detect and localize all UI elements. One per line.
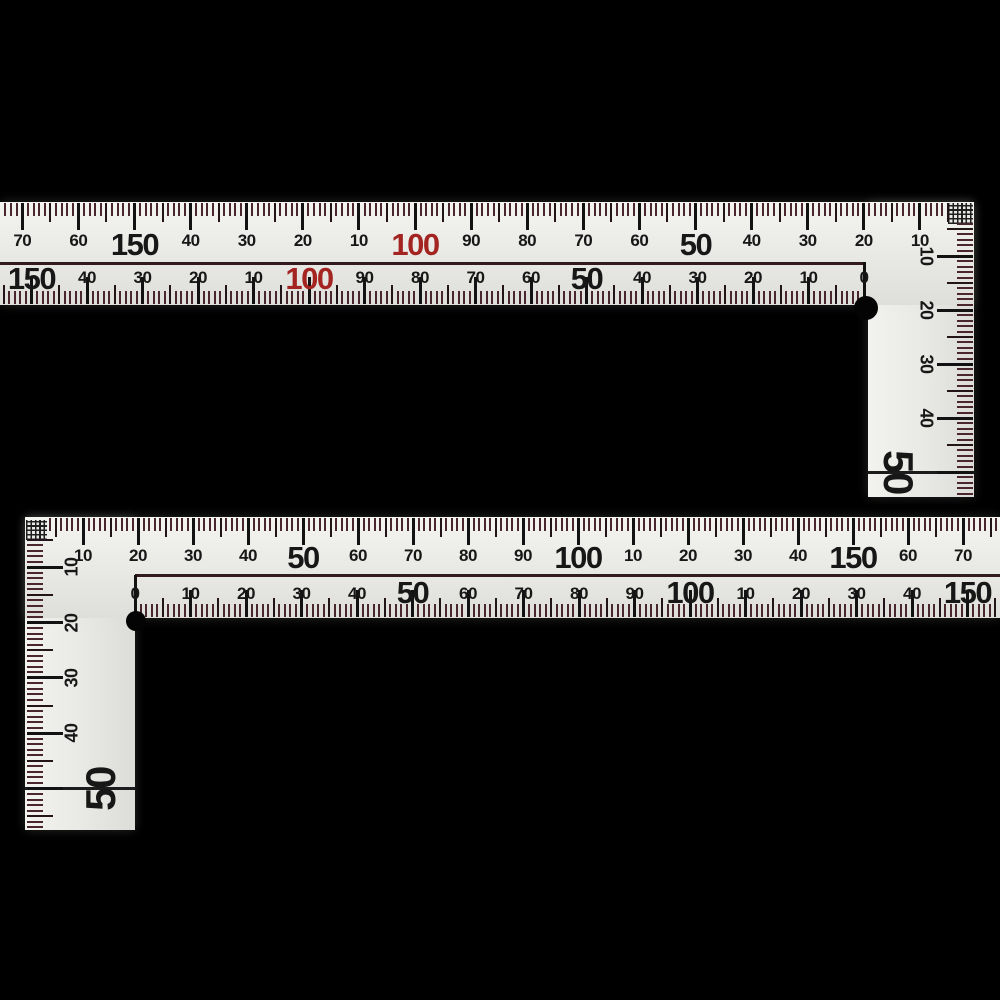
tick <box>894 604 896 617</box>
tick <box>556 604 558 617</box>
tick <box>154 518 156 531</box>
tick <box>258 518 260 531</box>
scene: 1020304050607080901001020304015060700102… <box>0 0 1000 1000</box>
tick <box>27 799 43 801</box>
tick <box>797 518 800 545</box>
tick <box>506 604 508 617</box>
tick <box>883 598 885 617</box>
tick <box>167 604 169 617</box>
tick <box>841 518 843 531</box>
tick <box>27 760 53 762</box>
tick <box>27 644 43 646</box>
tick <box>27 749 43 751</box>
scale-label: 150 <box>944 575 991 611</box>
tick <box>66 518 68 531</box>
tick <box>572 604 574 617</box>
tick <box>308 518 310 531</box>
tick <box>704 518 706 531</box>
tick <box>27 605 43 607</box>
tick <box>567 604 569 617</box>
tick <box>550 598 552 617</box>
tick <box>145 604 147 617</box>
tick <box>345 604 347 617</box>
tick <box>495 598 497 617</box>
tick <box>27 555 43 557</box>
tick <box>517 604 519 617</box>
tick <box>858 518 860 531</box>
tick <box>27 633 43 635</box>
tick <box>544 518 546 531</box>
tick <box>434 604 436 617</box>
tick <box>203 518 205 531</box>
tick <box>990 518 992 537</box>
tick <box>889 604 891 617</box>
tick <box>82 518 85 545</box>
tick <box>572 518 574 531</box>
scale-label: 10 <box>737 584 755 604</box>
tick <box>223 604 225 617</box>
scale-label: 80 <box>570 584 588 604</box>
tick <box>396 518 398 531</box>
tick <box>534 604 536 617</box>
tick <box>401 518 403 531</box>
tick <box>456 518 458 531</box>
tick <box>792 518 794 531</box>
tick <box>407 518 409 531</box>
tick <box>27 671 43 673</box>
tick <box>828 598 830 617</box>
tick <box>178 604 180 617</box>
tick <box>439 598 441 617</box>
scale-label: 20 <box>129 546 147 566</box>
tick <box>297 518 299 531</box>
tick <box>162 598 164 617</box>
tick <box>236 518 238 531</box>
tick <box>900 604 902 617</box>
tick <box>328 598 330 617</box>
tick <box>291 518 293 531</box>
tick <box>561 518 563 531</box>
tick <box>566 518 568 531</box>
tick <box>528 518 530 531</box>
tick <box>599 518 601 531</box>
tick <box>27 666 43 668</box>
tick <box>918 518 920 531</box>
tick <box>27 705 53 707</box>
tick <box>764 518 766 531</box>
tick <box>27 738 43 740</box>
tick <box>847 518 849 531</box>
tick <box>379 518 381 531</box>
tick <box>761 604 763 617</box>
tick <box>346 518 348 531</box>
tick <box>121 518 123 531</box>
scale-label: 10 <box>182 584 200 604</box>
tick <box>786 518 788 531</box>
tick <box>632 518 635 545</box>
tick <box>181 518 183 531</box>
tick <box>341 518 343 531</box>
tick <box>522 518 525 545</box>
tick <box>748 518 750 531</box>
tick <box>720 518 722 531</box>
tick <box>27 721 43 723</box>
tick <box>611 604 613 617</box>
tick <box>656 604 658 617</box>
tick <box>473 604 475 617</box>
scale-label: 90 <box>514 546 532 566</box>
tick <box>844 604 846 617</box>
tick <box>698 518 700 531</box>
tick <box>588 518 590 531</box>
tick <box>533 518 535 531</box>
tick <box>27 727 43 729</box>
tick <box>264 518 266 531</box>
tick <box>201 604 203 617</box>
tick <box>528 604 530 617</box>
tick <box>198 518 200 531</box>
tick <box>913 518 915 531</box>
tick <box>173 604 175 617</box>
tick <box>187 518 189 531</box>
tick <box>660 518 662 537</box>
tick <box>440 518 442 537</box>
tick <box>77 518 79 531</box>
tick <box>27 810 43 812</box>
tick <box>973 518 975 531</box>
tick <box>605 518 607 537</box>
tick <box>390 518 392 531</box>
tick <box>71 518 73 531</box>
tick <box>863 518 865 531</box>
tick <box>750 604 752 617</box>
tick <box>27 550 43 552</box>
tick <box>555 518 557 531</box>
tick <box>27 611 43 613</box>
tick <box>872 604 874 617</box>
tick <box>665 518 667 531</box>
tick <box>317 604 319 617</box>
tick <box>247 518 250 545</box>
tick <box>412 518 415 545</box>
scale-label: 30 <box>734 546 752 566</box>
tick <box>878 604 880 617</box>
tick <box>27 787 63 790</box>
tick <box>55 518 57 537</box>
tick <box>783 604 785 617</box>
tick <box>621 518 623 531</box>
tick <box>979 518 981 531</box>
tick <box>484 518 486 531</box>
tick <box>418 518 420 531</box>
scale-label: 20 <box>792 584 810 604</box>
tick <box>654 518 656 531</box>
tick <box>511 604 513 617</box>
tick <box>595 604 597 617</box>
tick <box>984 518 986 531</box>
tick <box>110 518 112 537</box>
tick <box>242 518 244 531</box>
scale-end-crosshatch <box>26 520 47 540</box>
tick <box>814 518 816 531</box>
tick <box>212 604 214 617</box>
tick <box>905 604 907 617</box>
tick <box>617 604 619 617</box>
scale-label: 20 <box>679 546 697 566</box>
tick <box>126 518 128 531</box>
tick <box>27 676 63 679</box>
tick <box>896 518 898 531</box>
tick <box>861 604 863 617</box>
tick <box>251 604 253 617</box>
tick <box>27 688 43 690</box>
tick <box>429 518 431 531</box>
tick <box>27 682 43 684</box>
tick <box>156 604 158 617</box>
tick <box>517 518 519 531</box>
tick <box>165 518 167 537</box>
tick <box>253 518 255 531</box>
tick <box>27 743 43 745</box>
tick <box>27 754 43 756</box>
scale-label: 60 <box>349 546 367 566</box>
scale-label: 90 <box>626 584 644 604</box>
tick <box>622 604 624 617</box>
tick <box>968 518 970 531</box>
tick <box>822 604 824 617</box>
tick <box>384 598 386 617</box>
tick <box>589 604 591 617</box>
tick <box>367 604 369 617</box>
scale-label: 10 <box>62 558 83 577</box>
tick <box>27 782 43 784</box>
tick <box>583 518 585 531</box>
tick <box>473 518 475 531</box>
tick <box>389 604 391 617</box>
tick <box>269 518 271 531</box>
tick <box>693 518 695 531</box>
tick <box>907 518 910 545</box>
tick <box>170 518 172 531</box>
tick <box>357 518 360 545</box>
tick <box>478 604 480 617</box>
tick <box>445 604 447 617</box>
tick <box>27 821 43 823</box>
scale-label: 100 <box>666 575 713 611</box>
tick <box>717 598 719 617</box>
tick <box>27 621 63 624</box>
tick <box>808 518 810 531</box>
tick <box>151 604 153 617</box>
tick <box>27 793 43 795</box>
scale-label: 30 <box>62 668 83 687</box>
scale-label: 40 <box>348 584 366 604</box>
tick <box>27 815 53 817</box>
scale-label: 50 <box>397 575 428 611</box>
tick <box>445 518 447 531</box>
tick <box>478 518 480 531</box>
tick <box>649 518 651 531</box>
tick <box>104 518 106 531</box>
tick <box>539 518 541 531</box>
tick <box>451 518 453 531</box>
tick <box>753 518 755 531</box>
tick <box>756 604 758 617</box>
tick <box>833 604 835 617</box>
tick <box>27 539 53 541</box>
tick <box>584 604 586 617</box>
tick <box>423 518 425 531</box>
tick <box>794 604 796 617</box>
tick <box>940 518 942 531</box>
tick <box>373 604 375 617</box>
scale-label: 70 <box>404 546 422 566</box>
tick <box>239 604 241 617</box>
tick <box>742 518 745 545</box>
tick <box>286 518 288 531</box>
tick <box>323 604 325 617</box>
tick <box>995 518 997 531</box>
tick <box>27 566 63 569</box>
tick <box>192 518 195 545</box>
tick <box>335 518 337 531</box>
tick <box>709 518 711 531</box>
tick <box>27 732 63 735</box>
tick <box>500 518 502 531</box>
tick <box>334 604 336 617</box>
tick <box>539 604 541 617</box>
tick <box>324 518 326 531</box>
tick <box>27 588 43 590</box>
tick <box>722 604 724 617</box>
tick <box>143 518 145 531</box>
tick <box>312 604 314 617</box>
scale-label: 20 <box>237 584 255 604</box>
tick <box>148 518 150 531</box>
tick <box>928 604 930 617</box>
tick <box>27 638 43 640</box>
scale-label: 10 <box>624 546 642 566</box>
tick <box>27 660 43 662</box>
tick <box>489 604 491 617</box>
tick <box>645 604 647 617</box>
tick <box>957 518 959 531</box>
tick <box>850 604 852 617</box>
tick <box>27 599 43 601</box>
tick <box>606 598 608 617</box>
tick <box>195 604 197 617</box>
tick <box>27 826 43 828</box>
tick <box>350 604 352 617</box>
scale-label: 40 <box>62 724 83 743</box>
scale-label: 70 <box>515 584 533 604</box>
tick <box>825 518 827 537</box>
tick <box>772 598 774 617</box>
tick <box>917 604 919 617</box>
tick <box>27 577 43 579</box>
tick <box>214 518 216 531</box>
tick <box>217 598 219 617</box>
tick <box>759 518 761 531</box>
tick <box>994 598 996 617</box>
tick <box>289 604 291 617</box>
tick <box>639 604 641 617</box>
scale-label: 70 <box>954 546 972 566</box>
tick <box>682 518 684 531</box>
tick <box>176 518 178 531</box>
tick <box>27 583 43 585</box>
tick <box>295 604 297 617</box>
tick <box>806 604 808 617</box>
scale-label: 50 <box>287 540 318 576</box>
tick <box>885 518 887 531</box>
tick <box>939 598 941 617</box>
tick <box>803 518 805 531</box>
scale-label: 40 <box>903 584 921 604</box>
tick <box>27 710 43 712</box>
tick <box>352 518 354 531</box>
tick <box>929 518 931 531</box>
tick <box>643 518 645 531</box>
bottom-framing-square: 1020304050607080901001020304015060700102… <box>0 0 1000 1000</box>
tick <box>49 518 51 531</box>
tick <box>811 604 813 617</box>
tick <box>275 518 277 537</box>
tick <box>726 518 728 531</box>
tick <box>231 518 233 531</box>
tick <box>737 518 739 531</box>
tick <box>27 699 43 701</box>
tick <box>830 518 832 531</box>
tick <box>869 518 871 531</box>
tick <box>132 518 134 531</box>
scale-label: 50 <box>77 767 125 811</box>
tick <box>88 518 90 531</box>
tick <box>484 604 486 617</box>
tick <box>27 649 53 651</box>
tick <box>220 518 222 537</box>
tick <box>374 518 376 531</box>
scale-label: 60 <box>899 546 917 566</box>
tick <box>27 572 43 574</box>
tick <box>661 598 663 617</box>
tick <box>159 518 161 531</box>
tick <box>839 604 841 617</box>
tick <box>616 518 618 531</box>
tick <box>778 604 780 617</box>
scale-label: 150 <box>829 540 876 576</box>
tick <box>330 518 332 537</box>
tick <box>687 518 690 545</box>
tick <box>385 518 387 537</box>
tick <box>27 716 43 718</box>
tick <box>27 594 53 596</box>
tick <box>600 604 602 617</box>
scale-label: 40 <box>789 546 807 566</box>
tick <box>137 518 140 545</box>
tick <box>874 518 876 531</box>
tick <box>99 518 101 531</box>
scale-label: 30 <box>184 546 202 566</box>
tick <box>489 518 491 531</box>
tick <box>924 518 926 531</box>
tick <box>594 518 596 531</box>
tick <box>506 518 508 531</box>
tick <box>922 604 924 617</box>
tick <box>362 604 364 617</box>
tick <box>456 604 458 617</box>
tick <box>278 604 280 617</box>
